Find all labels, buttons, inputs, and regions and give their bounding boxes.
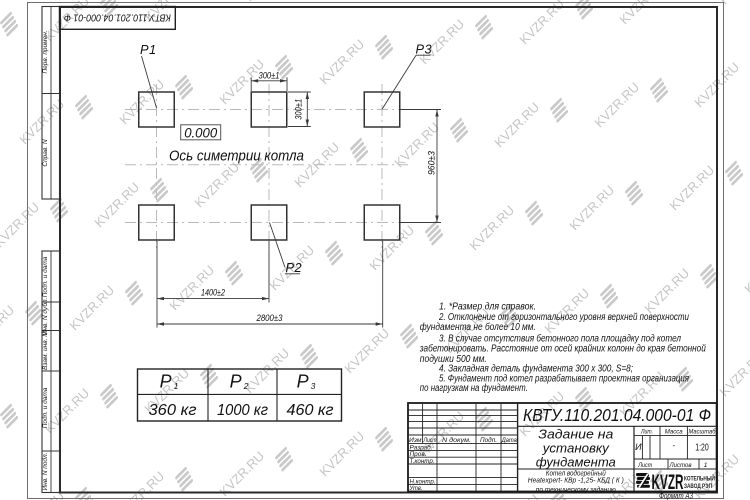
svg-text:KVZR.RU: KVZR.RU — [741, 245, 750, 296]
svg-text:KVZR.RU: KVZR.RU — [366, 222, 417, 273]
svg-text:360 кг: 360 кг — [149, 402, 197, 419]
svg-text:установку: установку — [542, 440, 610, 455]
svg-text:KVZR.RU: KVZR.RU — [466, 202, 517, 253]
svg-text:KVZR.RU: KVZR.RU — [566, 182, 617, 233]
svg-text:КВТУ.110.201.04.000-01 Ф: КВТУ.110.201.04.000-01 Ф — [64, 12, 171, 23]
svg-text:КВТУ.110.201.04.000-01 Ф: КВТУ.110.201.04.000-01 Ф — [523, 405, 711, 425]
svg-text:KVZR.RU: KVZR.RU — [666, 162, 717, 213]
svg-text:-: - — [672, 441, 675, 450]
svg-text:Ось симетрии котла: Ось симетрии котла — [169, 147, 304, 164]
svg-text:КОТЕЛЬНЫЙ: КОТЕЛЬНЫЙ — [684, 474, 715, 483]
svg-text:KVZR.RU: KVZR.RU — [0, 302, 17, 353]
svg-text:KVZR.RU: KVZR.RU — [491, 99, 542, 150]
svg-text:300±1: 300±1 — [294, 99, 304, 120]
svg-text:Масштаб: Масштаб — [689, 428, 717, 436]
svg-text:Утв.: Утв. — [409, 485, 423, 492]
svg-text:KVZR.RU: KVZR.RU — [216, 56, 267, 107]
svg-text:P1: P1 — [140, 42, 156, 57]
svg-text:KVZR.RU: KVZR.RU — [116, 468, 167, 500]
svg-text:KVZR.RU: KVZR.RU — [716, 0, 750, 7]
svg-text:KVZR.RU: KVZR.RU — [66, 282, 117, 333]
svg-text:Подп. и дата: Подп. и дата — [41, 256, 49, 297]
svg-text:фундамента не более 10 мм.: фундамента не более 10 мм. — [420, 321, 536, 333]
svg-text:460 кг: 460 кг — [287, 402, 334, 419]
svg-text:Лист: Лист — [638, 462, 653, 469]
svg-text:фундамента: фундамента — [536, 454, 616, 469]
svg-text:И: И — [635, 442, 642, 452]
svg-text:KVZR.RU: KVZR.RU — [341, 325, 392, 376]
svg-text:Задание на: Задание на — [538, 426, 613, 441]
svg-text:P2: P2 — [230, 372, 249, 392]
svg-text:KVZR.RU: KVZR.RU — [716, 348, 750, 399]
svg-text:Лит.: Лит. — [640, 429, 653, 436]
svg-text:N докум.: N докум. — [442, 436, 471, 444]
svg-text:Взам. инв. N: Взам. инв. N — [42, 332, 49, 370]
svg-text:KVZR.RU: KVZR.RU — [191, 159, 242, 210]
svg-text:по нагрузкам на фундамент.: по нагрузкам на фундамент. — [420, 382, 528, 394]
svg-text:300±1: 300±1 — [259, 70, 280, 80]
svg-text:ЗАВОД РЭП: ЗАВОД РЭП — [684, 483, 712, 490]
svg-text:KVZR.RU: KVZR.RU — [641, 265, 692, 316]
svg-text:Формат А3: Формат А3 — [659, 491, 694, 500]
svg-text:Разраб.: Разраб. — [410, 443, 433, 451]
svg-text:Лист: Лист — [423, 437, 437, 444]
svg-text:Инв. N дубл.: Инв. N дубл. — [41, 297, 49, 335]
svg-text:KVZR.RU: KVZR.RU — [591, 79, 642, 130]
svg-text:KVZR.RU: KVZR.RU — [316, 428, 367, 479]
svg-text:Дата: Дата — [501, 437, 517, 444]
svg-text:Heatexpert- КВр -1,25- КБД ( К: Heatexpert- КВр -1,25- КБД ( К ) — [528, 476, 624, 485]
svg-text:KVZR.RU: KVZR.RU — [316, 36, 367, 87]
svg-text:KVZR.RU: KVZR.RU — [616, 0, 667, 27]
svg-text:KVZR.RU: KVZR.RU — [0, 199, 42, 250]
svg-text:Подп.: Подп. — [480, 436, 497, 444]
svg-text:KVZR.RU: KVZR.RU — [116, 76, 167, 127]
svg-text:по техническому заданию: по техническому заданию — [536, 485, 616, 494]
svg-text:2800±3: 2800±3 — [256, 313, 283, 323]
svg-text:Подп. и дата: Подп. и дата — [41, 387, 49, 428]
svg-text:3. В случае отсутствия бетонн: 3. В случае отсутствия бетонного пола пл… — [439, 332, 681, 344]
svg-text:Масса: Масса — [665, 429, 683, 436]
svg-text:960±3: 960±3 — [426, 151, 436, 175]
svg-text:Листов: Листов — [669, 462, 692, 469]
svg-text:Изм: Изм — [409, 437, 422, 444]
svg-text:KVZR.RU: KVZR.RU — [241, 345, 292, 396]
svg-text:1: 1 — [704, 462, 708, 469]
svg-text:Перв. примен.: Перв. примен. — [42, 30, 49, 73]
svg-text:Справ. N: Справ. N — [42, 139, 49, 167]
svg-text:1000 кг: 1000 кг — [217, 402, 268, 419]
svg-text:Инв. N подл.: Инв. N подл. — [41, 452, 49, 490]
svg-text:1400±2: 1400±2 — [201, 288, 225, 298]
svg-text:Т.контр.: Т.контр. — [410, 458, 435, 465]
svg-text:P2: P2 — [286, 260, 302, 275]
svg-text:забетонировать. Расстояние от: забетонировать. Расстояние от осей крайн… — [419, 343, 706, 355]
svg-text:0.000: 0.000 — [184, 125, 217, 140]
svg-text:1:20: 1:20 — [695, 442, 709, 453]
svg-text:P3: P3 — [297, 372, 316, 392]
svg-text:P3: P3 — [416, 42, 432, 57]
